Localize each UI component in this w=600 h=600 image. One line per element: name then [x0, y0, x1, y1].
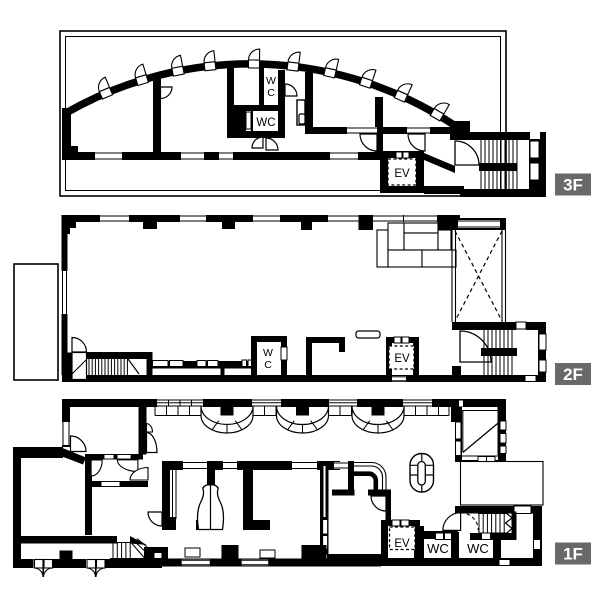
- svg-text:WC: WC: [467, 541, 489, 556]
- svg-text:WC: WC: [427, 541, 449, 556]
- svg-text:2F: 2F: [563, 365, 583, 384]
- svg-text:C: C: [267, 87, 275, 99]
- svg-text:EV: EV: [394, 168, 410, 180]
- svg-text:C: C: [264, 359, 272, 371]
- svg-text:W: W: [263, 347, 273, 359]
- svg-text:W: W: [266, 75, 276, 87]
- svg-text:EV: EV: [394, 538, 410, 550]
- svg-text:1F: 1F: [563, 545, 583, 564]
- svg-text:WC: WC: [256, 117, 275, 129]
- svg-text:3F: 3F: [563, 176, 583, 195]
- svg-text:EV: EV: [394, 353, 410, 365]
